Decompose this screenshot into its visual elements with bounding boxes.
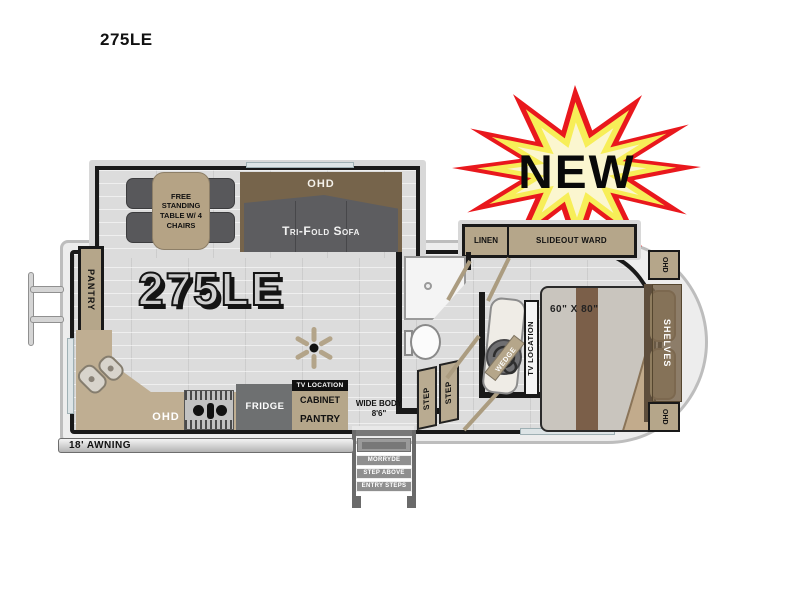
entry-step-foot bbox=[407, 496, 416, 508]
entry-step-above-label: STEP ABOVE bbox=[356, 468, 412, 479]
step-upper-label: STEP bbox=[444, 380, 453, 405]
kitchen-tv-location: TV LOCATION bbox=[292, 380, 348, 391]
shower-drain-icon bbox=[424, 282, 432, 290]
window-strip bbox=[67, 338, 74, 414]
fridge: FRIDGE bbox=[236, 384, 294, 430]
awning-bar: 18' AWNING bbox=[58, 438, 354, 453]
wide-body-note: WIDE BODY 8'6" bbox=[348, 399, 410, 420]
front-shelves: SHELVES bbox=[652, 284, 682, 402]
step-lower-label: STEP bbox=[422, 386, 431, 411]
step-upper: STEP bbox=[439, 360, 459, 424]
linen-cabinet: LINEN bbox=[465, 227, 509, 255]
floorplan-canvas: 275LE NEW FREE STANDING TABLE W/ 4 CHAIR… bbox=[0, 0, 800, 600]
front-ohd-bottom-label: OHD bbox=[660, 409, 668, 425]
toilet-bowl-icon bbox=[410, 324, 441, 360]
sofa-label: Tri-Fold Sofa bbox=[248, 222, 394, 242]
page-title: 275LE bbox=[100, 30, 153, 50]
floor-model-label: 275LE bbox=[138, 262, 284, 316]
sofa-ohd-label: OHD bbox=[252, 175, 390, 193]
entry-step-foot bbox=[352, 496, 361, 508]
kitchen-cabinet: CABINET bbox=[292, 391, 348, 410]
awning-label: 18' AWNING bbox=[69, 440, 131, 452]
stove-icon bbox=[184, 390, 234, 430]
new-badge-text: NEW bbox=[518, 146, 635, 199]
bedroom-slideout-wardrobe: LINEN SLIDEOUT WARD bbox=[462, 224, 637, 258]
dinette-label: FREE STANDING TABLE W/ 4 CHAIRS bbox=[153, 192, 209, 231]
wide-body-line1: WIDE BODY bbox=[348, 399, 410, 409]
front-shelves-label: SHELVES bbox=[662, 319, 672, 367]
entry-step-brand-label: MORRYDE bbox=[356, 455, 412, 466]
bedroom-tv-location-label: TV LOCATION bbox=[527, 321, 536, 376]
front-ohd-bottom: OHD bbox=[648, 402, 680, 432]
entry-step-tread bbox=[357, 438, 411, 452]
dinette-table: FREE STANDING TABLE W/ 4 CHAIRS bbox=[152, 172, 210, 250]
kitchen-sink-icon bbox=[76, 348, 134, 406]
rear-ladder-icon bbox=[28, 272, 64, 346]
bath-wall-stub bbox=[466, 252, 471, 270]
slideout-ward-cabinet: SLIDEOUT WARD bbox=[509, 227, 634, 255]
bed: 60" X 80" bbox=[540, 286, 656, 432]
bath-wall-left bbox=[396, 252, 402, 414]
ceiling-fan-icon bbox=[291, 325, 337, 371]
entry-steps-unit: MORRYDE STEP ABOVE ENTRY STEPS bbox=[352, 430, 416, 508]
wide-body-line2: 8'6" bbox=[348, 409, 410, 419]
bedroom-tv-location: TV LOCATION bbox=[524, 300, 539, 396]
front-ohd-top-label: OHD bbox=[660, 257, 668, 273]
bed-size-label: 60" X 80" bbox=[550, 304, 650, 316]
rear-pantry: PANTRY bbox=[78, 246, 104, 334]
rear-pantry-label: PANTRY bbox=[86, 269, 96, 311]
front-ohd-top: OHD bbox=[648, 250, 680, 280]
kitchen-pantry: PANTRY bbox=[292, 410, 348, 430]
window-strip bbox=[246, 162, 354, 168]
step-lower: STEP bbox=[417, 366, 437, 430]
entry-steps-label: ENTRY STEPS bbox=[356, 481, 412, 492]
